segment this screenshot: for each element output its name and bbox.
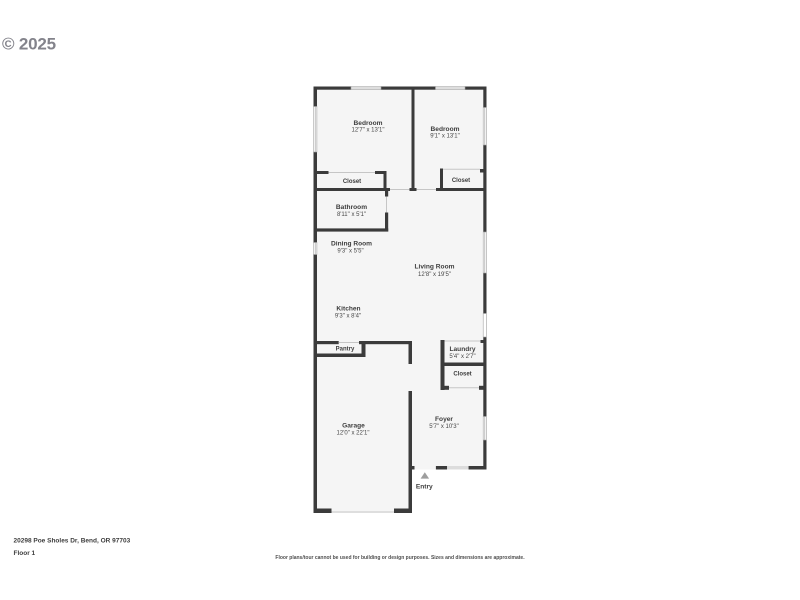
svg-text:Dining Room: Dining Room (331, 241, 372, 248)
svg-text:Entry: Entry (416, 483, 433, 490)
svg-text:Floor 1: Floor 1 (14, 550, 36, 557)
svg-text:12'0" x 22'1": 12'0" x 22'1" (337, 431, 370, 437)
svg-text:20298 Poe Sholes Dr, Bend, OR: 20298 Poe Sholes Dr, Bend, OR 97703 (14, 538, 131, 545)
svg-text:Living Room: Living Room (415, 264, 455, 271)
svg-text:Pantry: Pantry (336, 347, 355, 353)
svg-text:9'3" x 5'5": 9'3" x 5'5" (337, 249, 363, 255)
svg-text:© 2025: © 2025 (2, 35, 56, 54)
svg-text:Foyer: Foyer (435, 416, 453, 423)
svg-text:Laundry: Laundry (449, 346, 475, 353)
svg-text:12'7" x 13'1": 12'7" x 13'1" (352, 128, 385, 134)
svg-text:12'8" x 19'5": 12'8" x 19'5" (418, 272, 451, 278)
svg-text:Closet: Closet (452, 178, 470, 184)
svg-text:5'7" x 10'3": 5'7" x 10'3" (429, 424, 459, 430)
svg-text:Floor plans/tour cannot be use: Floor plans/tour cannot be used for buil… (275, 555, 525, 561)
svg-text:9'1" x 13'1": 9'1" x 13'1" (430, 134, 460, 140)
svg-text:Bedroom: Bedroom (354, 120, 383, 127)
svg-text:Closet: Closet (343, 179, 361, 185)
svg-text:Garage: Garage (342, 423, 365, 430)
svg-text:9'3" x 8'4": 9'3" x 8'4" (335, 314, 361, 320)
svg-text:Bathroom: Bathroom (336, 204, 367, 211)
svg-text:Closet: Closet (453, 372, 471, 378)
svg-text:5'4" x 2'7": 5'4" x 2'7" (449, 354, 475, 360)
svg-text:Bedroom: Bedroom (431, 126, 460, 133)
svg-text:Kitchen: Kitchen (336, 306, 360, 313)
svg-text:8'11" x 5'1": 8'11" x 5'1" (337, 212, 366, 218)
